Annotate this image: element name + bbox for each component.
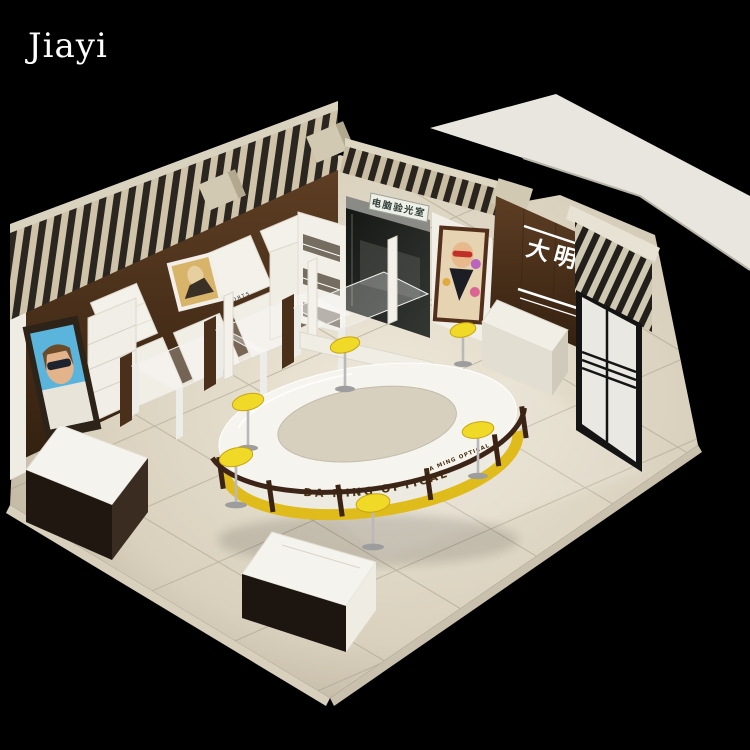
partition-frame [224,292,233,380]
partition-frame [308,258,317,346]
render-canvas: Jiayi [0,0,750,750]
poster-red-sunglasses [433,225,490,324]
watermark-logo: Jiayi [28,26,108,66]
left-wall-trim [10,311,26,480]
shop-render: PORTS [0,0,750,750]
partition-frame [388,236,397,324]
